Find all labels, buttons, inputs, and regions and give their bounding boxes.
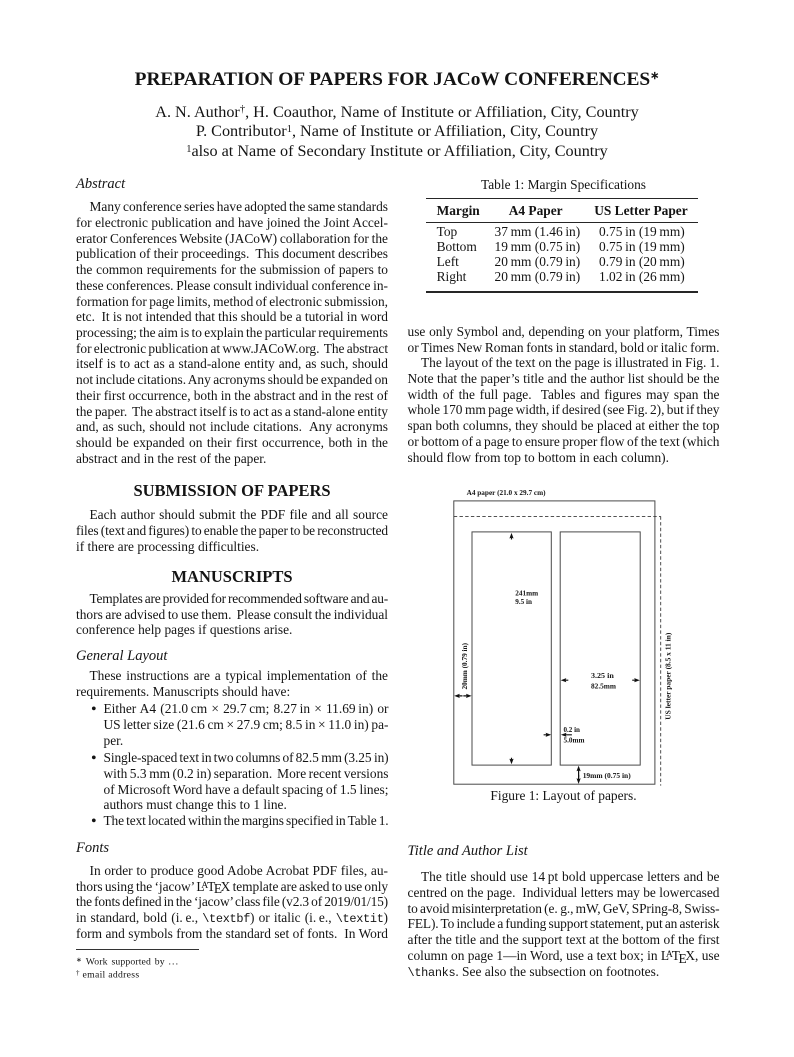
svg-text:5.0mm: 5.0mm bbox=[564, 736, 586, 745]
svg-text:0.2 in: 0.2 in bbox=[564, 725, 581, 734]
svg-text:9.5 in: 9.5 in bbox=[515, 597, 532, 606]
svg-text:19mm (0.75 in): 19mm (0.75 in) bbox=[583, 771, 631, 780]
svg-text:A4 paper (21.0 x 29.7 cm): A4 paper (21.0 x 29.7 cm) bbox=[467, 488, 546, 497]
svg-text:US letter paper (8.5 x 11 in): US letter paper (8.5 x 11 in) bbox=[664, 632, 673, 719]
svg-text:3.25 in: 3.25 in bbox=[591, 671, 615, 680]
svg-text:20mm (0.79 in): 20mm (0.79 in) bbox=[460, 643, 469, 690]
svg-text:82.5mm: 82.5mm bbox=[591, 681, 617, 690]
